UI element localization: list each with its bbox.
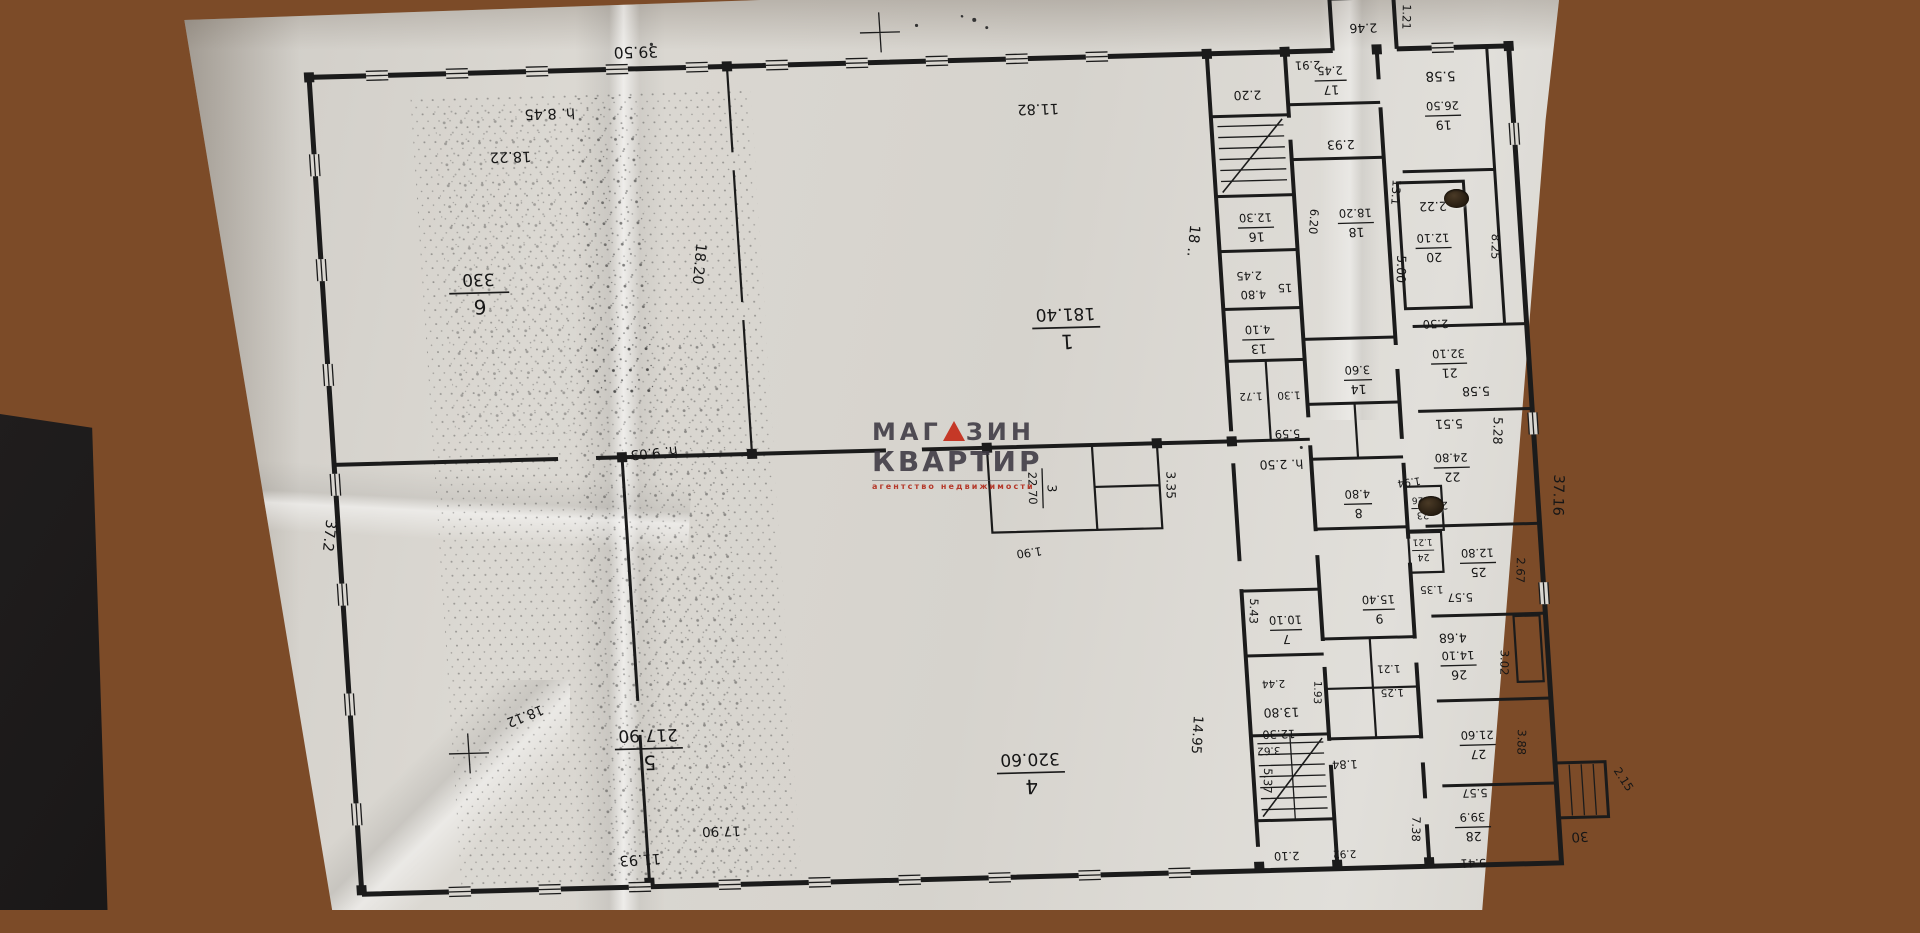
- room-label-19: 19 26.50: [1424, 98, 1462, 133]
- dim-label: 5.37: [1260, 768, 1275, 794]
- dim-label: 8.25: [1488, 234, 1503, 260]
- dim-label: 5.28: [1490, 416, 1506, 445]
- room-label-27: 27 21.60: [1459, 728, 1497, 763]
- room-number: 17: [1323, 82, 1340, 97]
- dim-label: 1.72: [1239, 390, 1263, 403]
- dim-label: 5.57: [1462, 786, 1488, 801]
- dim-label: 5.57: [1447, 590, 1473, 605]
- dim-label: 2.92: [1333, 847, 1357, 860]
- dim-label: 37.2: [319, 519, 338, 553]
- dim-label: 11.82: [1017, 100, 1060, 117]
- room-number: 22: [1444, 469, 1461, 484]
- dim-label: 4.80: [1240, 287, 1266, 302]
- room-label-21: 21 32.10: [1430, 346, 1468, 381]
- hole-punch-top: [1444, 189, 1469, 208]
- dim-label: 1.30: [1277, 389, 1301, 402]
- dim-label: 3.02: [1497, 649, 1512, 675]
- dim-label: 14.95: [1188, 715, 1206, 755]
- room-number: 16: [1248, 229, 1265, 244]
- room-number: 4: [1025, 775, 1039, 799]
- dim-label: 18.22: [489, 148, 532, 165]
- dim-label: 5.51: [1435, 416, 1464, 432]
- dim-label: 37.16: [1549, 474, 1566, 516]
- room-number: 1: [1060, 329, 1074, 353]
- room-label-16: 16 12.30: [1237, 210, 1275, 245]
- dim-label: 2.22: [1419, 199, 1448, 215]
- room-label-1: 1 181.40: [1031, 303, 1102, 355]
- dim-label: 2.20: [1233, 87, 1262, 103]
- room-area: 39.9: [1459, 810, 1485, 825]
- hole-punch-bottom: [1418, 496, 1444, 516]
- room-number: 30: [1571, 828, 1590, 845]
- dim-label: 15: [1277, 281, 1293, 295]
- desk-photo-scene: 6 330 1 181.40 5 217.90 4 320.60 3 22.70…: [0, 0, 1920, 910]
- room-label-9: 9 15.40: [1361, 592, 1396, 627]
- dim-label: 5.00: [1394, 255, 1410, 284]
- room-area: 24.80: [1434, 450, 1468, 465]
- dim-label: 2.44: [1261, 677, 1285, 690]
- dim-label: 17.90: [701, 822, 741, 839]
- room-area: 15.40: [1361, 592, 1395, 607]
- staircase-upper: [1217, 119, 1288, 193]
- room-label-7: 7 10.10: [1269, 613, 1304, 648]
- room-number: 14: [1350, 382, 1367, 397]
- dim-label: 2.93: [1326, 137, 1355, 153]
- watermark-divider: [872, 480, 1022, 481]
- room-area: 320.60: [1000, 748, 1061, 770]
- watermark-brand-line1: МАГЗИН: [872, 420, 1042, 445]
- red-triangle-logo-icon: [943, 421, 965, 441]
- room-area: 1.21: [1412, 536, 1433, 547]
- dim-label: 1.35: [1420, 583, 1444, 596]
- dim-label: h. 8.45: [524, 104, 576, 121]
- dim-label: 11.93: [619, 850, 662, 868]
- dim-label: 1.21: [1399, 4, 1414, 30]
- room-area: 12.80: [1460, 546, 1494, 561]
- photocopy-noise: [406, 7, 1330, 886]
- room-number: 28: [1465, 829, 1482, 844]
- room-label-14: 14 3.60: [1343, 363, 1373, 398]
- room-area: 18.20: [1338, 206, 1372, 221]
- room-area: 12.30: [1239, 210, 1273, 225]
- watermark-tagline: агентство недвижимости: [872, 483, 1042, 491]
- room-area: 4.10: [1244, 322, 1270, 337]
- room-label-25: 25 12.80: [1459, 545, 1497, 580]
- dim-label: 2.91: [1294, 58, 1320, 73]
- dim-label: 13.80: [1263, 705, 1300, 721]
- watermark-text-mag: МАГ: [872, 418, 942, 446]
- dim-label: 12.30: [1262, 727, 1296, 742]
- room-area: 14.10: [1441, 648, 1475, 663]
- dim-label: h. 2.50: [1259, 456, 1304, 472]
- dim-label: 1.94: [1396, 474, 1421, 489]
- room-label-8: 8 4.80: [1343, 487, 1373, 522]
- dim-label: 5.59: [1274, 427, 1300, 442]
- room-number: 5: [643, 751, 657, 775]
- dim-label: 5.41: [1460, 856, 1486, 871]
- room-label-18: 18 18.20: [1337, 206, 1375, 241]
- room-area: 4.80: [1344, 487, 1370, 502]
- dim-label: 3.62: [1257, 744, 1281, 757]
- dim-label: 2.15: [1611, 765, 1637, 794]
- room-area: 32.10: [1432, 346, 1466, 361]
- dim-label: 4.68: [1438, 630, 1467, 646]
- room-number: 9: [1375, 611, 1384, 626]
- dim-label: 1.21: [1377, 662, 1401, 675]
- room-area: 330: [461, 269, 495, 290]
- room-area: 12.10: [1416, 231, 1450, 246]
- room-number: 18: [1348, 225, 1365, 240]
- dim-label: 1.84: [1332, 757, 1358, 772]
- room-area: 3.60: [1344, 363, 1370, 378]
- room-number: 3: [1044, 484, 1059, 492]
- room-area: 26.50: [1426, 98, 1460, 113]
- room-number: 27: [1470, 747, 1487, 762]
- room-number: 7: [1282, 632, 1291, 647]
- dim-label: 5.58: [1461, 384, 1490, 400]
- room-label-24: 24 1.21: [1411, 536, 1435, 563]
- dim-label: 39.50: [613, 42, 659, 61]
- room-label-20: 20 12.10: [1415, 231, 1453, 266]
- dim-label: 1.25: [1380, 686, 1404, 699]
- dim-label: 2.50: [1422, 317, 1448, 332]
- room-area: 10.10: [1269, 613, 1303, 628]
- dim-label: 13.1: [1388, 179, 1403, 206]
- magazin-kvartir-watermark: МАГЗИН КВАРТИР агентство недвижимости: [872, 420, 1042, 491]
- dim-label: 2.45: [1236, 268, 1262, 283]
- room-number: 13: [1250, 341, 1267, 356]
- room-label-4: 4 320.60: [995, 748, 1066, 800]
- room-label-22: 22 24.80: [1433, 450, 1471, 485]
- room-area: 21.60: [1460, 728, 1494, 743]
- room-number: 21: [1441, 365, 1458, 380]
- room-number: 6: [473, 295, 487, 319]
- dim-label: 5.43: [1247, 598, 1262, 624]
- dim-label: 6.20: [1306, 208, 1321, 235]
- room-area: 181.40: [1035, 303, 1096, 325]
- room-number: 24: [1417, 551, 1430, 562]
- room-number: 20: [1426, 250, 1443, 265]
- watermark-text-zin: ЗИН: [966, 418, 1035, 446]
- dim-label: 3.35: [1163, 471, 1178, 499]
- room-area: 217.90: [618, 724, 679, 746]
- dim-label: 3.88: [1514, 729, 1529, 755]
- room-number: 25: [1470, 565, 1487, 580]
- dim-label: 1.90: [1015, 544, 1043, 561]
- dim-label: 1.93: [1311, 680, 1324, 704]
- dim-label: 2.67: [1513, 557, 1528, 583]
- dim-label: 2.10: [1273, 849, 1299, 864]
- room-number: 19: [1435, 117, 1452, 132]
- dim-label: 7.38: [1409, 816, 1424, 842]
- watermark-brand-line2: КВАРТИР: [872, 447, 1042, 476]
- room-label-13: 13 4.10: [1241, 322, 1275, 357]
- dim-label: 18 ..: [1183, 224, 1202, 258]
- room-label-28: 28 39.9: [1454, 810, 1492, 845]
- dim-label: 2.46: [1349, 20, 1378, 36]
- room-label-26: 26 14.10: [1440, 648, 1478, 683]
- room-number: 26: [1451, 667, 1468, 682]
- dim-label: 5.58: [1425, 67, 1456, 84]
- room-number: 8: [1354, 506, 1363, 521]
